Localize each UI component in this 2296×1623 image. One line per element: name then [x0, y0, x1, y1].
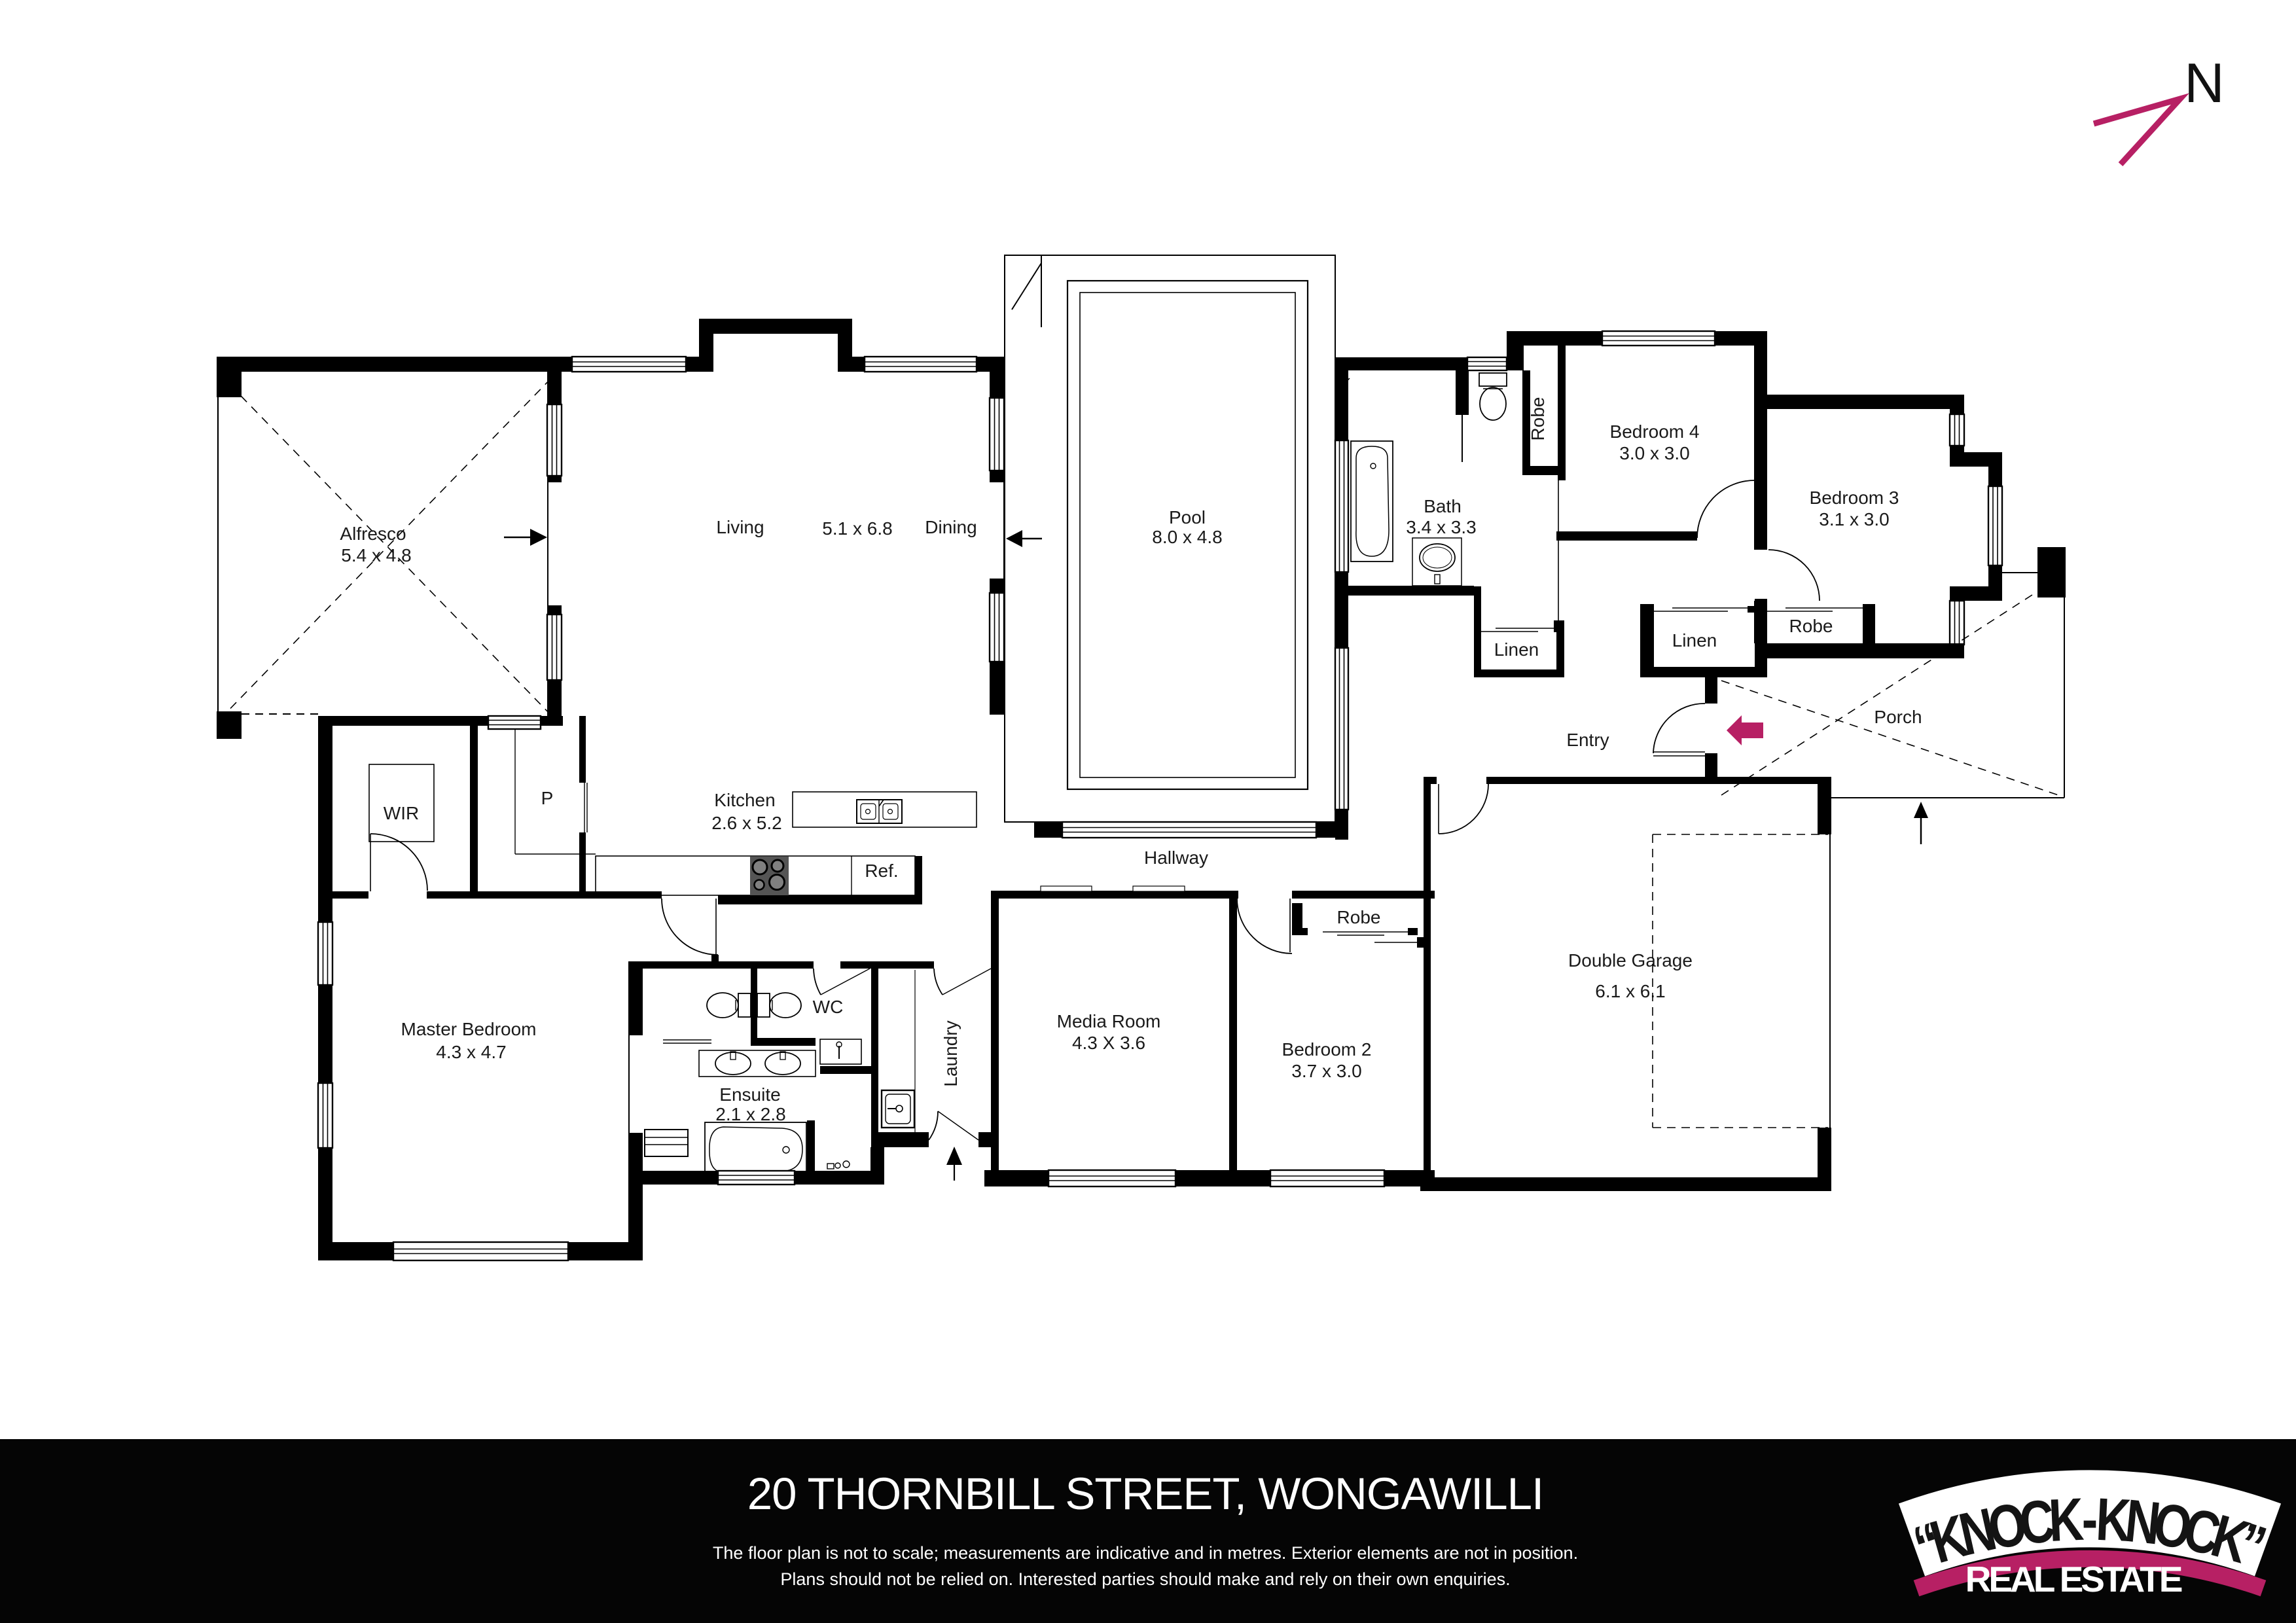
svg-text:5.1 x 6.8: 5.1 x 6.8 — [822, 518, 892, 539]
svg-text:The floor plan is not to scale: The floor plan is not to scale; measurem… — [713, 1543, 1578, 1563]
svg-text:P: P — [541, 788, 554, 808]
svg-text:Pool: Pool — [1169, 507, 1206, 527]
svg-text:K: K — [2047, 1486, 2085, 1554]
svg-text:6.1 x 6.1: 6.1 x 6.1 — [1595, 981, 1665, 1001]
svg-text:REAL ESTATE: REAL ESTATE — [1965, 1559, 2182, 1599]
svg-text:Alfresco: Alfresco — [340, 524, 406, 544]
svg-text:Bath: Bath — [1424, 496, 1462, 516]
svg-text:3.7 x 3.0: 3.7 x 3.0 — [1291, 1061, 1361, 1081]
svg-text:Living: Living — [716, 517, 764, 537]
svg-text:WC: WC — [813, 997, 844, 1017]
svg-text:Media Room: Media Room — [1057, 1011, 1161, 1031]
svg-text:3.4 x 3.3: 3.4 x 3.3 — [1406, 517, 1476, 537]
svg-text:2.1 x 2.8: 2.1 x 2.8 — [715, 1104, 785, 1124]
svg-text:4.3 X 3.6: 4.3 X 3.6 — [1072, 1033, 1145, 1053]
svg-text:Dining: Dining — [925, 517, 977, 537]
svg-text:Bedroom 4: Bedroom 4 — [1610, 421, 1700, 442]
svg-text:4.3 x 4.7: 4.3 x 4.7 — [436, 1042, 506, 1062]
svg-text:Bedroom 3: Bedroom 3 — [1810, 488, 1899, 508]
svg-text:5.4 x 4.8: 5.4 x 4.8 — [341, 545, 411, 565]
svg-text:3.0 x 3.0: 3.0 x 3.0 — [1619, 443, 1689, 463]
svg-text:20 THORNBILL STREET, WONGAWILL: 20 THORNBILL STREET, WONGAWILLI — [747, 1469, 1543, 1519]
svg-text:Bedroom 2: Bedroom 2 — [1282, 1039, 1372, 1060]
svg-text:Robe: Robe — [1789, 616, 1833, 636]
svg-text:Kitchen: Kitchen — [714, 790, 775, 810]
svg-text:Robe: Robe — [1337, 907, 1381, 927]
svg-text:8.0 x 4.8: 8.0 x 4.8 — [1152, 527, 1222, 547]
svg-text:WIR: WIR — [384, 803, 419, 823]
svg-text:Hallway: Hallway — [1144, 847, 1208, 868]
svg-text:Linen: Linen — [1672, 630, 1717, 651]
svg-text:Porch: Porch — [1874, 707, 1922, 727]
svg-text:Entry: Entry — [1566, 730, 1609, 750]
svg-text:3.1 x 3.0: 3.1 x 3.0 — [1819, 509, 1889, 529]
svg-text:Double Garage: Double Garage — [1568, 950, 1693, 971]
svg-text:N: N — [2184, 52, 2224, 115]
svg-text:Robe: Robe — [1528, 397, 1548, 441]
svg-text:Ref.: Ref. — [865, 861, 898, 881]
svg-text:Linen: Linen — [1494, 639, 1539, 660]
svg-text:Master Bedroom: Master Bedroom — [401, 1019, 537, 1039]
svg-text:Laundry: Laundry — [941, 1020, 961, 1086]
svg-text:Ensuite: Ensuite — [719, 1084, 780, 1105]
svg-text:2.6 x 5.2: 2.6 x 5.2 — [711, 813, 781, 833]
svg-text:Plans should not be relied on.: Plans should not be relied on. Intereste… — [780, 1569, 1510, 1589]
